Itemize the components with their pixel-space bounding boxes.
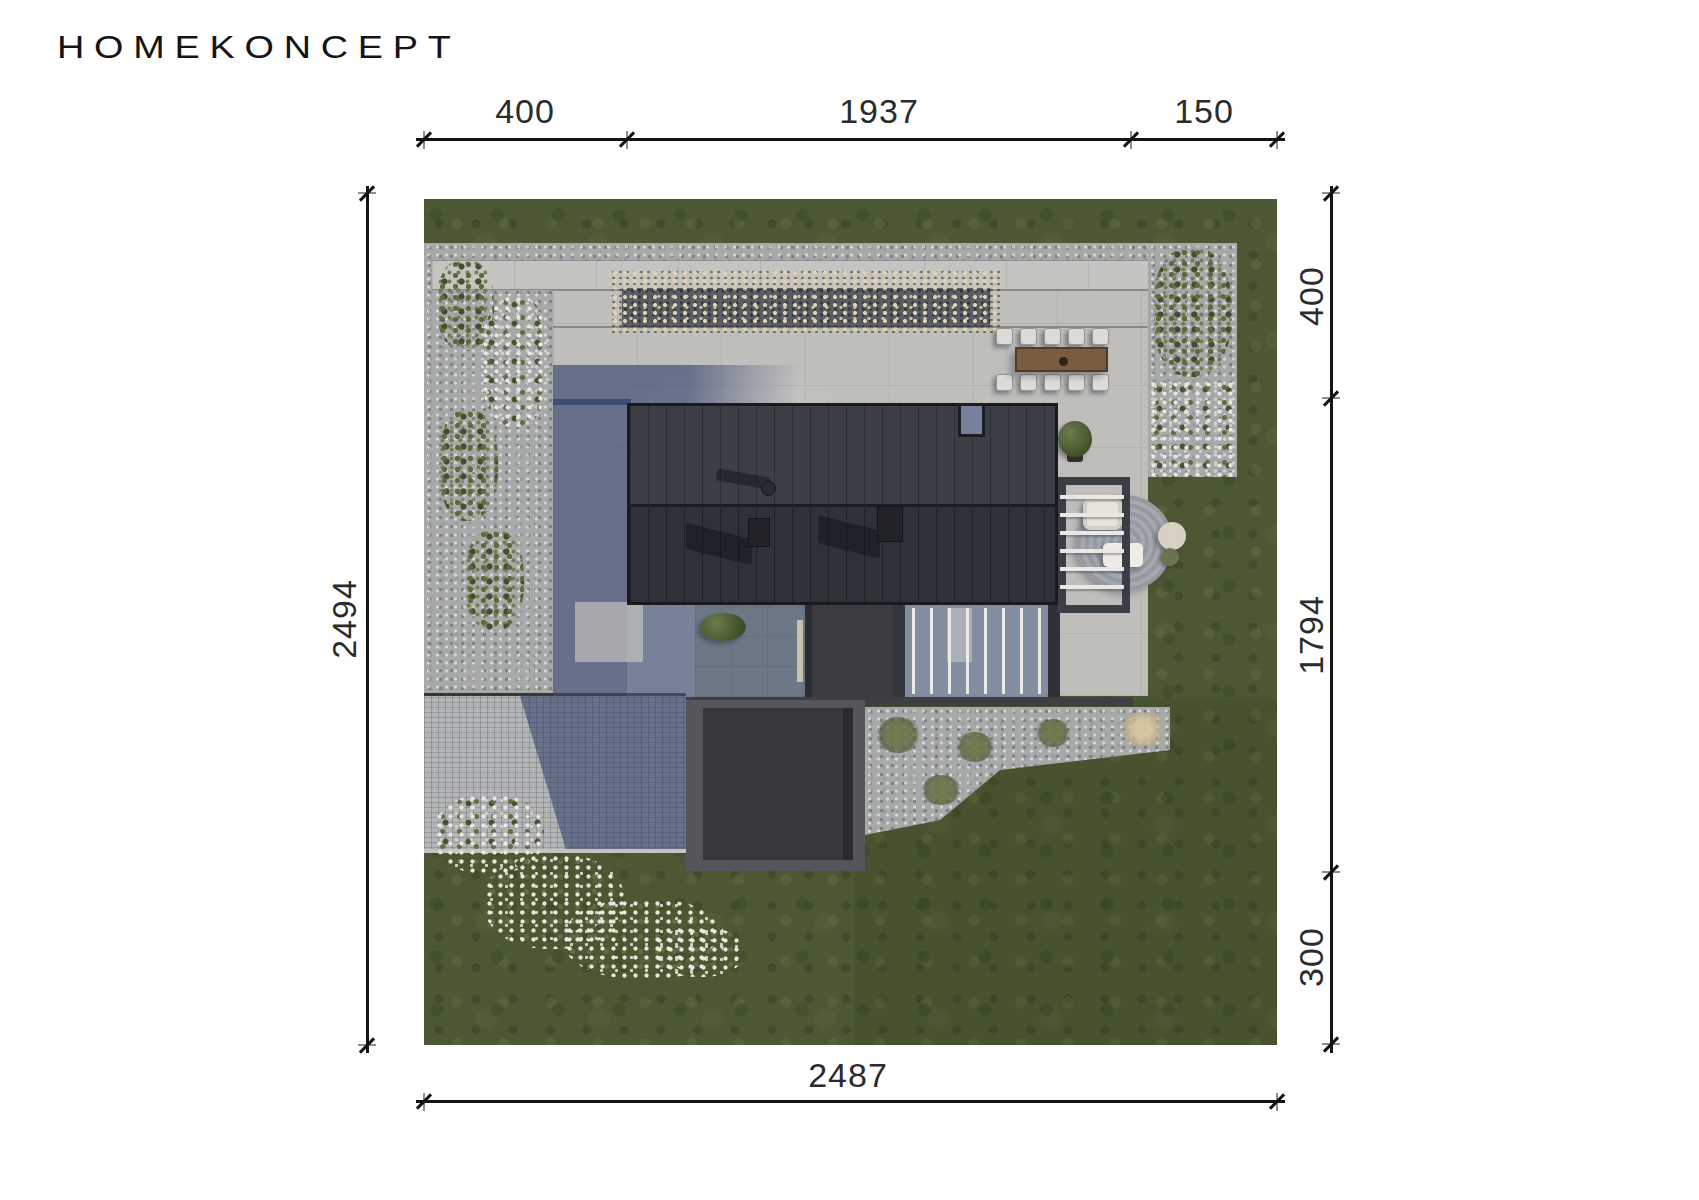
sunlit-patch xyxy=(575,602,643,662)
wall xyxy=(893,605,905,697)
dining-chair xyxy=(1020,374,1037,391)
roof-vent xyxy=(761,481,776,496)
pergola-slat xyxy=(1060,495,1124,499)
dining-chair xyxy=(1068,328,1085,345)
dining-chair xyxy=(996,328,1013,345)
louver-slat xyxy=(984,608,987,694)
skylight xyxy=(748,518,770,547)
pergola-slat xyxy=(1060,585,1124,589)
pouf-stool xyxy=(1158,522,1186,550)
paving-joint xyxy=(553,289,1148,291)
grass-tuft xyxy=(920,775,962,805)
louver-slat xyxy=(948,608,951,694)
pergola-slat xyxy=(1060,567,1124,571)
grass-tuft xyxy=(955,732,995,762)
roof-ridge xyxy=(627,504,1058,507)
wall xyxy=(1048,605,1060,697)
garage-roof-edge xyxy=(843,708,853,860)
louver-slat xyxy=(912,608,915,694)
garage-roof-panel xyxy=(703,708,845,860)
flower-bed-left-strip xyxy=(480,295,550,427)
grass-tuft xyxy=(875,717,921,753)
dimension-label-right-middle: 1794 xyxy=(1292,535,1330,735)
louver-slat xyxy=(1002,608,1005,694)
pergola-slat xyxy=(1060,549,1124,553)
dining-chair xyxy=(996,374,1013,391)
dining-chair xyxy=(1092,328,1109,345)
dining-chair xyxy=(1044,374,1061,391)
door-mat xyxy=(797,620,803,682)
shrub-patch xyxy=(464,529,524,631)
shrub-patch xyxy=(1152,247,1232,377)
potted-shrub xyxy=(1058,421,1092,457)
pergola-slat xyxy=(1060,531,1124,535)
dining-chair xyxy=(1092,374,1109,391)
dimension-label-top-left: 400 xyxy=(425,92,625,130)
dining-chair xyxy=(1044,328,1061,345)
pergola-slat xyxy=(1060,513,1124,517)
right-dimension-line xyxy=(1330,186,1333,1053)
louver-slat xyxy=(966,608,969,694)
table-bowl xyxy=(1059,357,1068,366)
dimension-label-right-top: 400 xyxy=(1292,196,1330,396)
pouf-stool xyxy=(1161,548,1179,566)
site-plan-aerial-view xyxy=(424,199,1277,1045)
brand-logo: HOMEKONCEPT xyxy=(57,30,461,66)
flower-bed-front xyxy=(654,927,744,977)
louver-slat xyxy=(1038,608,1041,694)
ornamental-grasses xyxy=(610,269,1002,333)
skylight xyxy=(877,506,903,542)
paving-joint xyxy=(424,693,686,696)
flower-bed-right xyxy=(1148,380,1237,477)
shrub-patch xyxy=(438,409,498,521)
dimension-label-bottom: 2487 xyxy=(748,1056,948,1094)
wall xyxy=(805,605,812,697)
courtyard-shrub xyxy=(700,613,746,641)
louver-slat xyxy=(1020,608,1023,694)
patio-louvers xyxy=(905,605,1048,697)
chimney-opening xyxy=(958,403,985,437)
dining-chair xyxy=(1020,328,1037,345)
dining-chair xyxy=(1068,374,1085,391)
dimension-label-left: 2494 xyxy=(325,519,363,719)
louver-slat xyxy=(930,608,933,694)
shaded-room xyxy=(812,605,893,697)
dimension-label-right-bottom: 300 xyxy=(1292,857,1330,1057)
garage-roof xyxy=(686,700,865,871)
dimension-label-top-middle: 1937 xyxy=(779,92,979,130)
grass-tuft xyxy=(1035,719,1071,747)
left-dimension-line xyxy=(366,186,369,1053)
dimension-label-top-right: 150 xyxy=(1104,92,1304,130)
top-dimension-line xyxy=(416,138,1285,141)
bottom-dimension-line xyxy=(416,1100,1285,1103)
flower-cluster xyxy=(1120,712,1166,746)
dining-table xyxy=(1015,347,1108,372)
